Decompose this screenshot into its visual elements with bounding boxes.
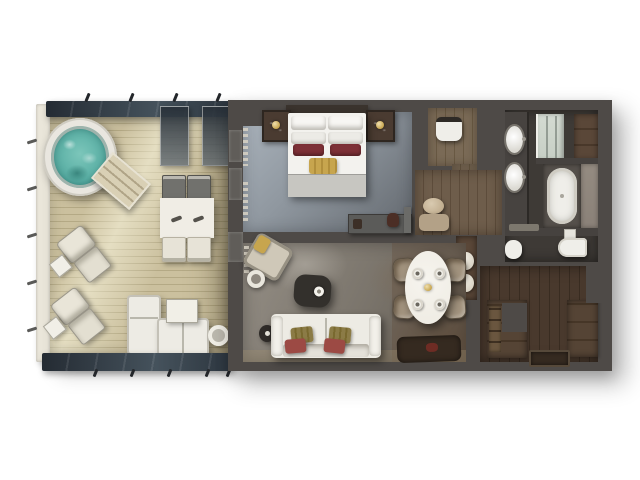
bath-mat (509, 224, 539, 231)
outdoor-sofa-seats (157, 318, 209, 356)
awning-bottom (42, 353, 232, 371)
accent-pillow (330, 144, 361, 156)
table-setting (171, 215, 183, 223)
cushion-seam (182, 321, 184, 353)
wardrobe-left (487, 300, 527, 358)
red-pillow (284, 338, 306, 354)
sofa-arm (271, 316, 283, 356)
entry-mat (529, 350, 570, 367)
accent-pillow (293, 144, 324, 156)
nightstand-right (366, 110, 395, 142)
sink (506, 126, 523, 153)
wall-bump (586, 263, 612, 303)
bath-ledge (581, 164, 598, 228)
bed-pillow (328, 116, 363, 130)
lamp-finial (265, 331, 270, 336)
bathtub (547, 168, 577, 224)
wall-notch (502, 303, 527, 332)
drawer-stack (489, 306, 501, 352)
table-lamp (272, 121, 280, 129)
shower (536, 114, 564, 160)
curtain (243, 182, 248, 224)
shower-glass-seam (555, 116, 557, 158)
bedroom-window (229, 130, 242, 162)
sofa-arm (369, 316, 381, 356)
bedroom-console (348, 214, 412, 234)
bed-foot-runner (288, 174, 366, 197)
sink (506, 164, 523, 191)
outdoor-dining-chair (187, 237, 211, 262)
outdoor-dining-table (160, 198, 214, 238)
toilet-lid-edge (436, 117, 462, 122)
place-setting (434, 299, 445, 310)
curtain (243, 128, 248, 166)
wc-toilet (436, 117, 462, 141)
outdoor-dining-chair (162, 237, 186, 262)
rug-decor (426, 343, 438, 352)
throw-pillow (309, 158, 337, 174)
bed-pillow (291, 116, 326, 130)
vanity-stool (423, 198, 444, 214)
round-side-table (247, 270, 265, 288)
console-sculpture (387, 213, 399, 227)
place-setting (412, 268, 423, 279)
bathroom-toilet (558, 238, 587, 257)
outdoor-sofa-chaise (127, 295, 161, 355)
balcony-door (228, 232, 243, 262)
console-decor (353, 219, 362, 229)
place-setting (412, 299, 423, 310)
outdoor-dining-chair (162, 175, 186, 200)
outdoor-round-table (208, 325, 229, 346)
privacy-panel (160, 106, 189, 166)
dark-rug (397, 335, 462, 363)
red-pillow (323, 338, 345, 354)
faucet (522, 137, 526, 141)
wardrobe-right (567, 300, 598, 357)
coffee-table (293, 274, 332, 309)
cushion-seam (130, 317, 158, 319)
bed-pillow (328, 132, 363, 144)
decor-dish (314, 286, 325, 297)
gold-throw (252, 234, 271, 254)
outdoor-dining-chair (187, 175, 211, 200)
bathtub-deck (543, 164, 581, 228)
table-setting (193, 215, 205, 223)
floorplan-canvas (0, 0, 640, 480)
table-lamp (376, 121, 384, 129)
shower-glass-seam (546, 116, 548, 158)
linen-closet (574, 114, 598, 160)
bedroom-window (229, 168, 242, 200)
bedroom-door-leaf (404, 207, 411, 233)
vanity-desk (419, 214, 449, 231)
bidet (505, 240, 522, 259)
faucet (522, 175, 526, 179)
dining-table (405, 251, 451, 324)
outdoor-square-table (166, 299, 198, 323)
privacy-panel (202, 106, 230, 166)
tub-drain (560, 194, 564, 198)
centerpiece (424, 284, 432, 291)
king-bed (288, 113, 366, 196)
sofa (271, 314, 381, 358)
nightstand-left (262, 110, 291, 142)
bed-pillow (291, 132, 326, 144)
place-setting (434, 268, 445, 279)
